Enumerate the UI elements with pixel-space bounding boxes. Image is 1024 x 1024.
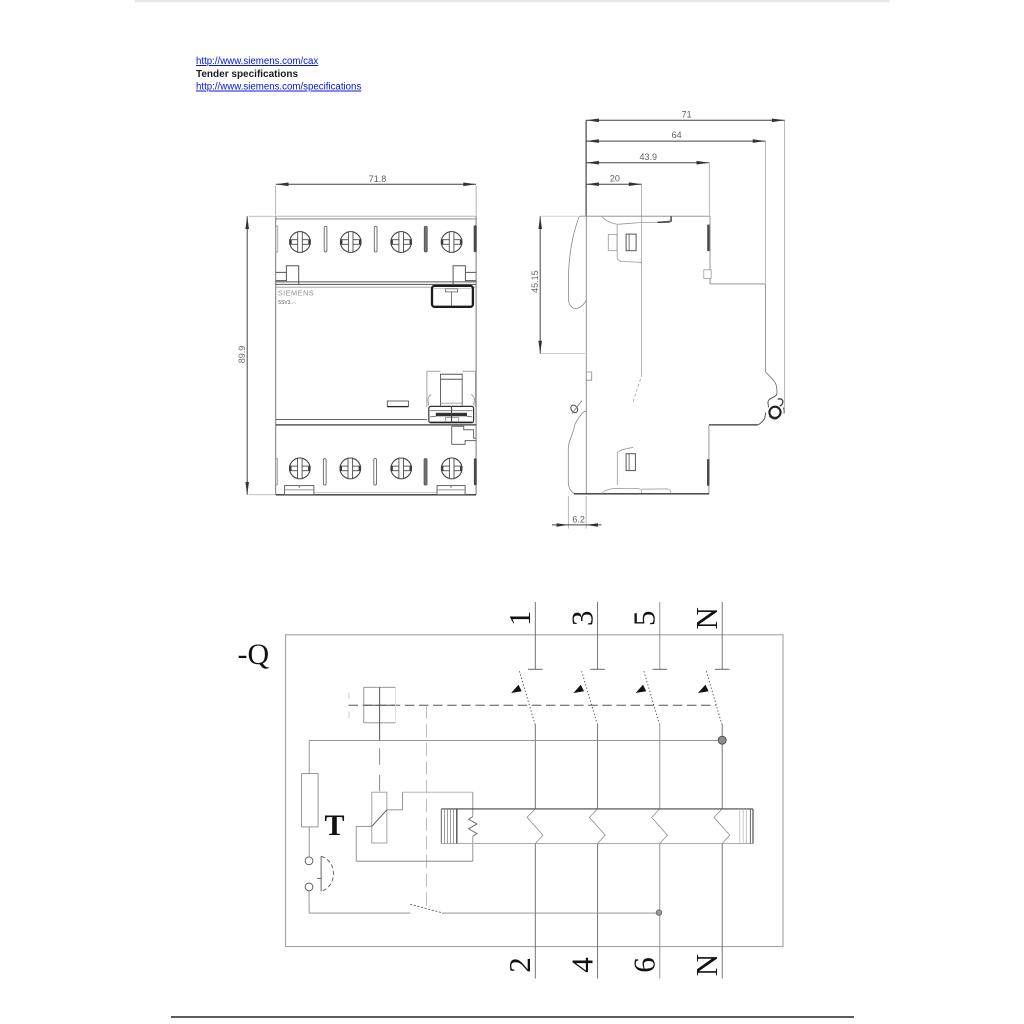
svg-text:89.9: 89.9 <box>237 346 247 364</box>
svg-text:5SV3..-.: 5SV3..-. <box>278 300 296 306</box>
svg-text:6.2: 6.2 <box>572 515 585 525</box>
svg-text:20: 20 <box>610 173 620 183</box>
svg-text:4: 4 <box>564 957 599 973</box>
svg-text:71.8: 71.8 <box>369 174 387 184</box>
svg-text:http://www.siemens.com/cax: http://www.siemens.com/cax <box>196 56 318 67</box>
svg-text:6: 6 <box>627 957 662 973</box>
svg-text:1: 1 <box>502 611 537 627</box>
svg-text:5: 5 <box>627 611 662 627</box>
svg-text:T: T <box>325 809 345 842</box>
svg-text:64: 64 <box>672 130 682 140</box>
svg-text:43.9: 43.9 <box>640 152 658 162</box>
svg-text:http://www.siemens.com/specifi: http://www.siemens.com/specifications <box>196 82 361 93</box>
svg-text:3: 3 <box>564 611 599 627</box>
svg-text:N: N <box>689 954 724 976</box>
svg-text:N: N <box>689 607 724 629</box>
svg-text:45.15: 45.15 <box>530 270 540 293</box>
svg-text:SIEMENS: SIEMENS <box>278 289 314 298</box>
svg-text:Tender specifications: Tender specifications <box>196 69 299 80</box>
svg-text:71: 71 <box>682 109 692 119</box>
svg-text:-Q: -Q <box>238 638 270 671</box>
svg-text:2: 2 <box>502 957 537 973</box>
